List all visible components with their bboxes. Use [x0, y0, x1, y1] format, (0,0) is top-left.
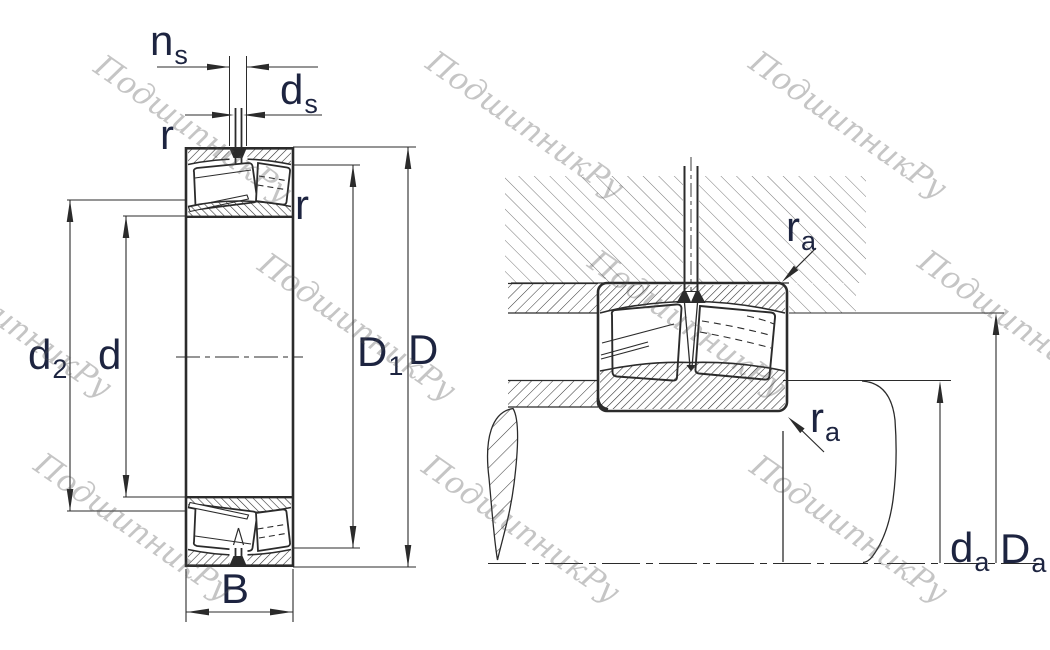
label-B: B — [221, 568, 250, 610]
shaft-end-curve — [862, 381, 896, 563]
label-ds: ds — [280, 69, 318, 111]
label-D: D — [408, 329, 439, 371]
label-d: d — [98, 334, 122, 376]
roller-row-bottom — [189, 503, 291, 552]
label-da: da — [950, 527, 989, 569]
label-Da: Da — [1000, 528, 1046, 570]
label-ra-top: ra — [786, 206, 816, 248]
technical-drawing — [0, 0, 1050, 650]
dimension-da — [937, 381, 944, 563]
label-D1: D1 — [357, 331, 403, 373]
shaft-shoulder-teardrop — [488, 409, 518, 561]
dimension-Da — [993, 313, 1000, 563]
left-view-bearing-section — [176, 56, 303, 567]
label-ra-bottom: ra — [810, 397, 840, 439]
label-r-right: r — [295, 184, 310, 226]
label-r-top: r — [160, 114, 175, 156]
outer-ring-abutment-band — [508, 284, 598, 313]
label-d2: d2 — [28, 334, 67, 376]
right-view-mounting — [488, 157, 1040, 564]
shaft-shoulder-band — [508, 381, 598, 407]
housing-shoulder-hatch — [789, 284, 856, 314]
label-ns: ns — [150, 20, 188, 62]
drawing-page: ns ds r r d2 d D1 D B ra ra da Da Подшип… — [0, 0, 1050, 650]
